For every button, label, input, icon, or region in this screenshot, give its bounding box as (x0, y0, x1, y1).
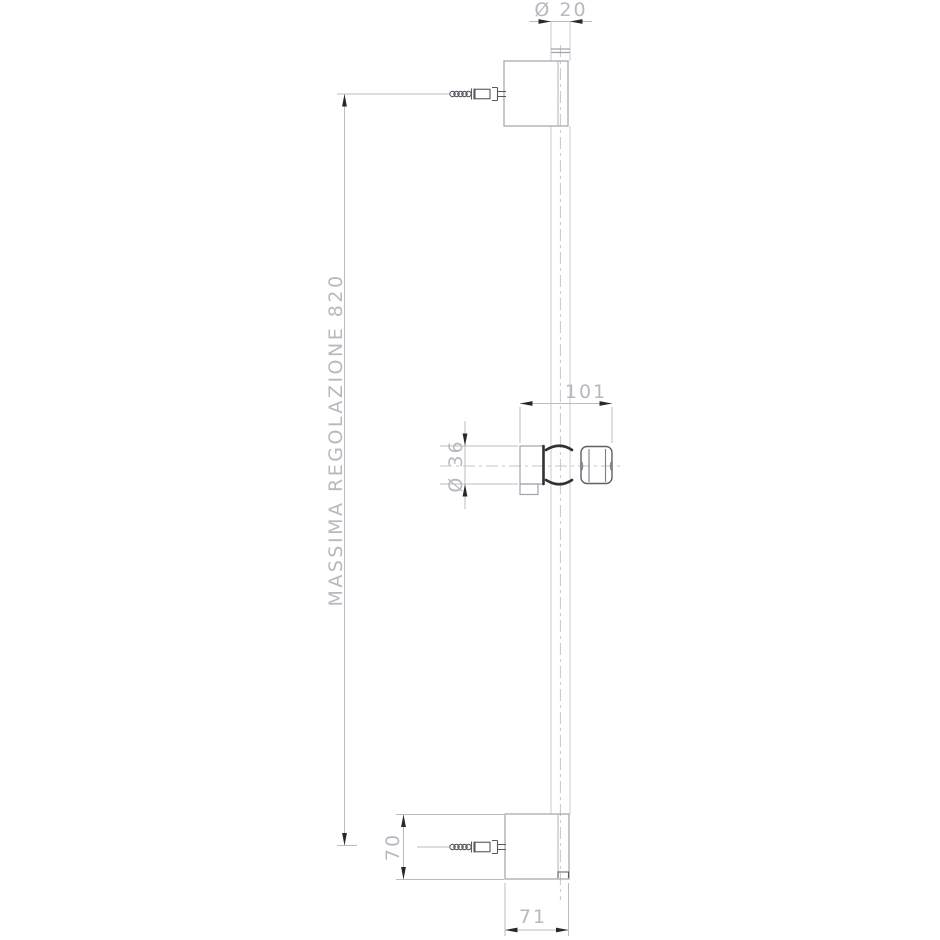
dim-slider-width: 101 (520, 381, 612, 443)
arrowhead (520, 401, 533, 406)
bottom-wall-bracket (505, 814, 569, 879)
top-wall-bracket (504, 61, 568, 126)
arrowhead (342, 833, 347, 846)
slider-body (520, 446, 544, 484)
rod-end-mark (558, 872, 569, 878)
technical-drawing-canvas: Ø 20 MASSIMA REGOLAZIONE 820 101 Ø 36 70 (0, 0, 940, 940)
clamp-arc-top (546, 446, 572, 450)
wall-anchor-screw-bottom (417, 841, 506, 854)
arrowhead (401, 867, 406, 880)
top-diameter-label: Ø 20 (534, 0, 587, 21)
rail-rod (551, 22, 570, 901)
dim-holder-diameter: Ø 36 (440, 421, 518, 509)
slider-width-label: 101 (565, 381, 607, 403)
slider-knob (581, 447, 612, 484)
max-adjustment-label: MASSIMA REGOLAZIONE 820 (325, 273, 347, 606)
arrowhead (401, 815, 406, 828)
bracket-height-label: 70 (382, 833, 404, 861)
slider-tab (520, 484, 538, 495)
bracket-outline (505, 814, 569, 879)
arrowhead (556, 928, 569, 933)
dim-top-diameter: Ø 20 (529, 0, 592, 24)
slider-assembly (440, 446, 622, 495)
holder-diameter-label: Ø 36 (445, 439, 467, 492)
bracket-width-label: 71 (519, 906, 547, 928)
wall-anchor-screw-top (450, 88, 506, 101)
shower-rail-drawing: Ø 20 MASSIMA REGOLAZIONE 820 101 Ø 36 70 (0, 0, 940, 940)
dim-bracket-width: 71 (505, 883, 569, 936)
arrowhead (505, 928, 518, 933)
dim-max-adjustment: MASSIMA REGOLAZIONE 820 (325, 94, 449, 846)
anchor-screw-icon (450, 88, 506, 101)
clamp-arc-bottom (546, 480, 572, 484)
arrowhead (342, 94, 347, 107)
anchor-screw-icon (450, 841, 506, 854)
